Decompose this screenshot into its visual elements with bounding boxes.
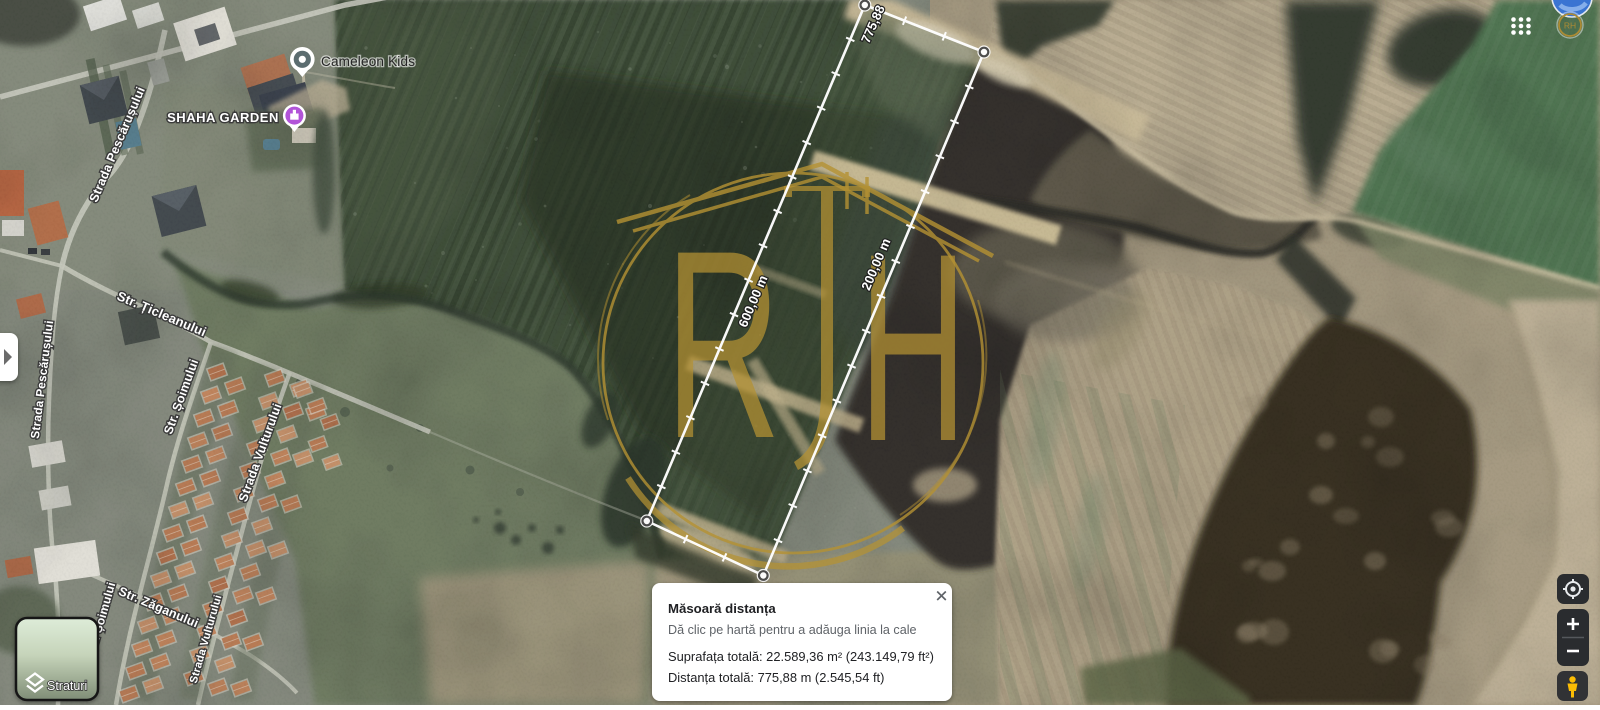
svg-text:SHAHA GARDEN: SHAHA GARDEN xyxy=(167,110,279,125)
svg-text:Cameleon Kids: Cameleon Kids xyxy=(321,54,415,69)
svg-text:Măsoară distanța: Măsoară distanța xyxy=(668,601,776,616)
svg-text:Distanța totală: 775,88 m (2.5: Distanța totală: 775,88 m (2.545,54 ft) xyxy=(668,670,884,685)
svg-text:RH: RH xyxy=(1564,21,1576,31)
svg-text:Suprafața totală: 22.589,36 m²: Suprafața totală: 22.589,36 m² (243.149,… xyxy=(668,649,934,664)
svg-text:H: H xyxy=(859,198,967,498)
svg-text:Dă clic pe hartă pentru a adău: Dă clic pe hartă pentru a adăuga linia l… xyxy=(668,623,917,637)
svg-text:R: R xyxy=(665,194,781,494)
svg-text:Straturi: Straturi xyxy=(47,679,87,693)
